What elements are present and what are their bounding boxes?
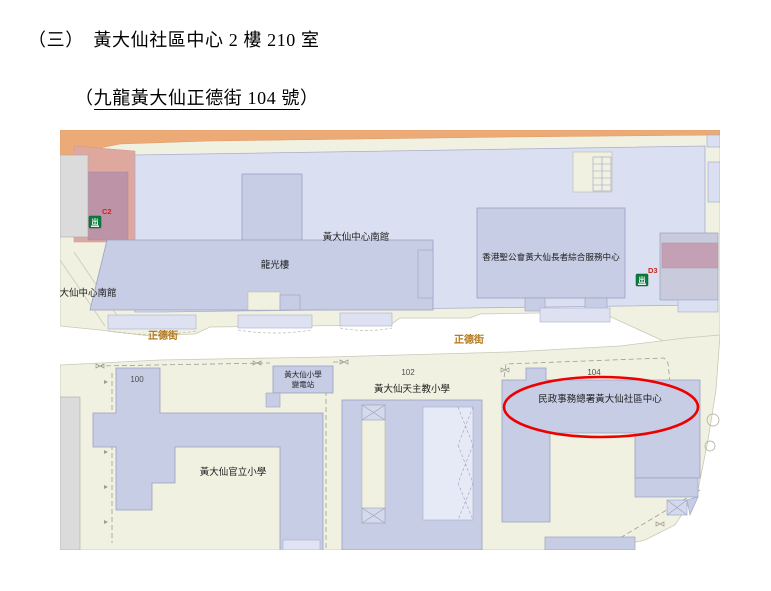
exit-c2-code: C2 (102, 207, 112, 216)
street-number-104: 104 (587, 368, 601, 377)
site-map-svg: C2 出 D3 出 黃大仙中心南館 龍光樓 黃大仙中心南館 香港聖公會黃大仙長者… (60, 130, 720, 550)
label-south-annex-left: 黃大仙中心南館 (60, 287, 117, 299)
label-govt-school: 黃大仙官立小學 (200, 466, 267, 478)
lower-block: 100 黃大仙小學 變電站 102 黃大仙天主教小學 黃大仙官立小學 104 民… (60, 335, 720, 550)
street-label-right: 正德街 (454, 333, 484, 346)
heading-address: （九龍黃大仙正德街 104 號） (75, 84, 319, 110)
corner-block (707, 135, 720, 147)
label-community-centre: 民政事務總署黃大仙社區中心 (538, 393, 662, 405)
lung-kwong-tower (242, 174, 302, 244)
label-substation-1: 黃大仙小學 (284, 369, 322, 379)
grey-building-lower (60, 397, 80, 550)
catholic-inner-pale (423, 407, 473, 520)
label-substation-2: 變電站 (292, 379, 315, 389)
substation-annex (266, 393, 280, 407)
small-mid-block (418, 250, 433, 298)
exit-icon-subtext (91, 226, 99, 227)
grey-building-upper (60, 155, 88, 237)
label-lung-kwong-house: 龍光樓 (261, 259, 290, 271)
document-page: （三） 黃大仙社區中心 2 樓 210 室 （九龍黃大仙正德街 104 號） (0, 0, 771, 591)
street-number-102: 102 (401, 368, 415, 377)
stairs-icon (593, 157, 611, 191)
mauve-strip (88, 172, 128, 240)
heading-room-text: （三） 黃大仙社區中心 2 樓 210 室 (28, 30, 320, 50)
exit-d3-code: D3 (648, 266, 658, 275)
d3-mauve-block (662, 243, 718, 268)
heading-room: （三） 黃大仙社區中心 2 樓 210 室 (28, 26, 320, 52)
lung-kwong-notch (248, 292, 280, 310)
lung-kwong-notch-block (280, 295, 300, 310)
site-map: C2 出 D3 出 黃大仙中心南館 龍光樓 黃大仙中心南館 香港聖公會黃大仙長者… (60, 130, 720, 550)
exit-icon-subtext (638, 284, 646, 285)
heading-address-underlined: 九龍黃大仙正德街 104 號 (94, 88, 300, 110)
upper-block: C2 出 D3 出 黃大仙中心南館 龍光樓 黃大仙中心南館 香港聖公會黃大仙長者… (60, 130, 720, 344)
catholic-courtyard (362, 405, 385, 523)
community-centre-x-tile (667, 497, 698, 515)
label-south-annex-top: 黃大仙中心南館 (323, 231, 390, 243)
bottom-mid-block (545, 537, 635, 550)
label-elderly-centre: 香港聖公會黃大仙長者綜合服務中心 (482, 251, 620, 262)
d3-lower-block (678, 300, 718, 312)
street-number-100: 100 (130, 375, 144, 384)
exit-c2-glyph: 出 (92, 217, 99, 226)
govt-school-lower-light (283, 540, 320, 550)
heading-address-close: ） (300, 88, 319, 108)
exit-d3-glyph: 出 (639, 275, 646, 284)
label-catholic-school: 黃大仙天主教小學 (374, 383, 450, 395)
street-label-left: 正德街 (148, 329, 178, 342)
heading-address-open: （ (75, 88, 94, 108)
corner-block (708, 162, 720, 202)
community-centre-lower-section (635, 478, 698, 497)
